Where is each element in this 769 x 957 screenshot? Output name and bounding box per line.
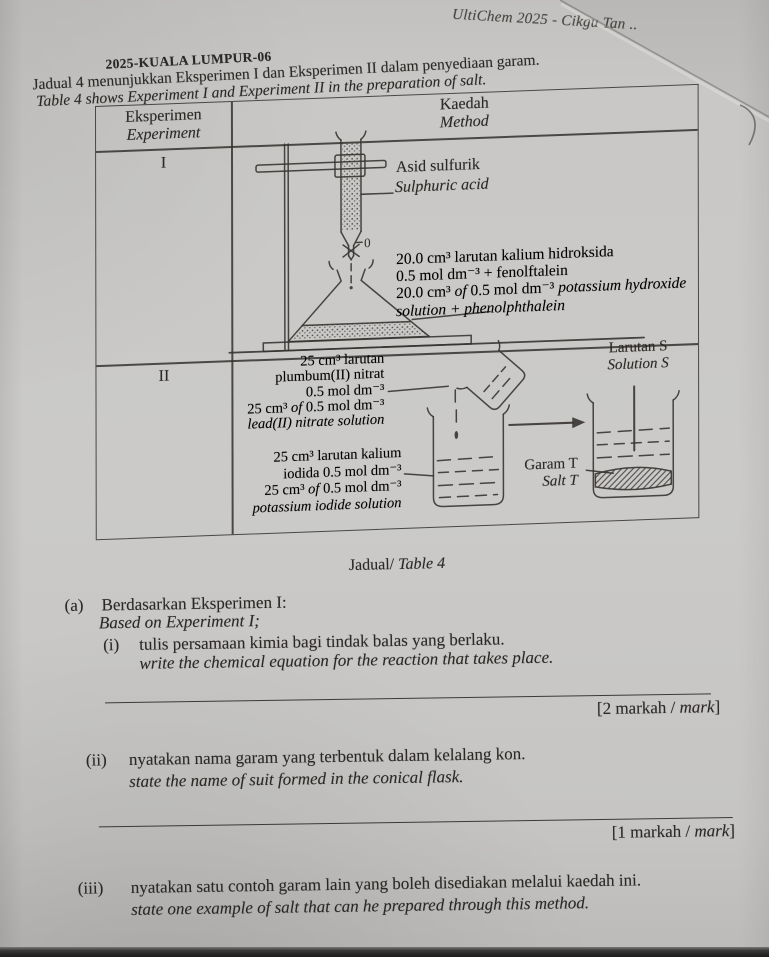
question-iii-text-en: state one example of salt that can he pr… [131,893,589,920]
desk-edge-strip [0,947,769,957]
question-a-number: (a) [64,596,83,616]
marks-i: [2 markah / mark] [550,697,720,720]
question-ii-text-ms: nyatakan nama garam yang terbentuk dalam… [129,744,526,770]
question-ii-text-en: state the name of suit formed in the con… [129,767,464,792]
question-iii-number: (iii) [78,878,104,898]
marks-ii: [1 markah / mark] [565,821,735,844]
question-a-text-en: Based on Experiment I; [99,611,260,633]
question-block: (a) Berdasarkan Eksperimen I: Based on E… [0,0,769,957]
question-i-number: (i) [103,635,119,655]
question-ii-number: (ii) [86,750,107,770]
scanned-exam-page: UltiChem 2025 - Cikgu Tan .. 2025-KUALA … [0,0,769,957]
